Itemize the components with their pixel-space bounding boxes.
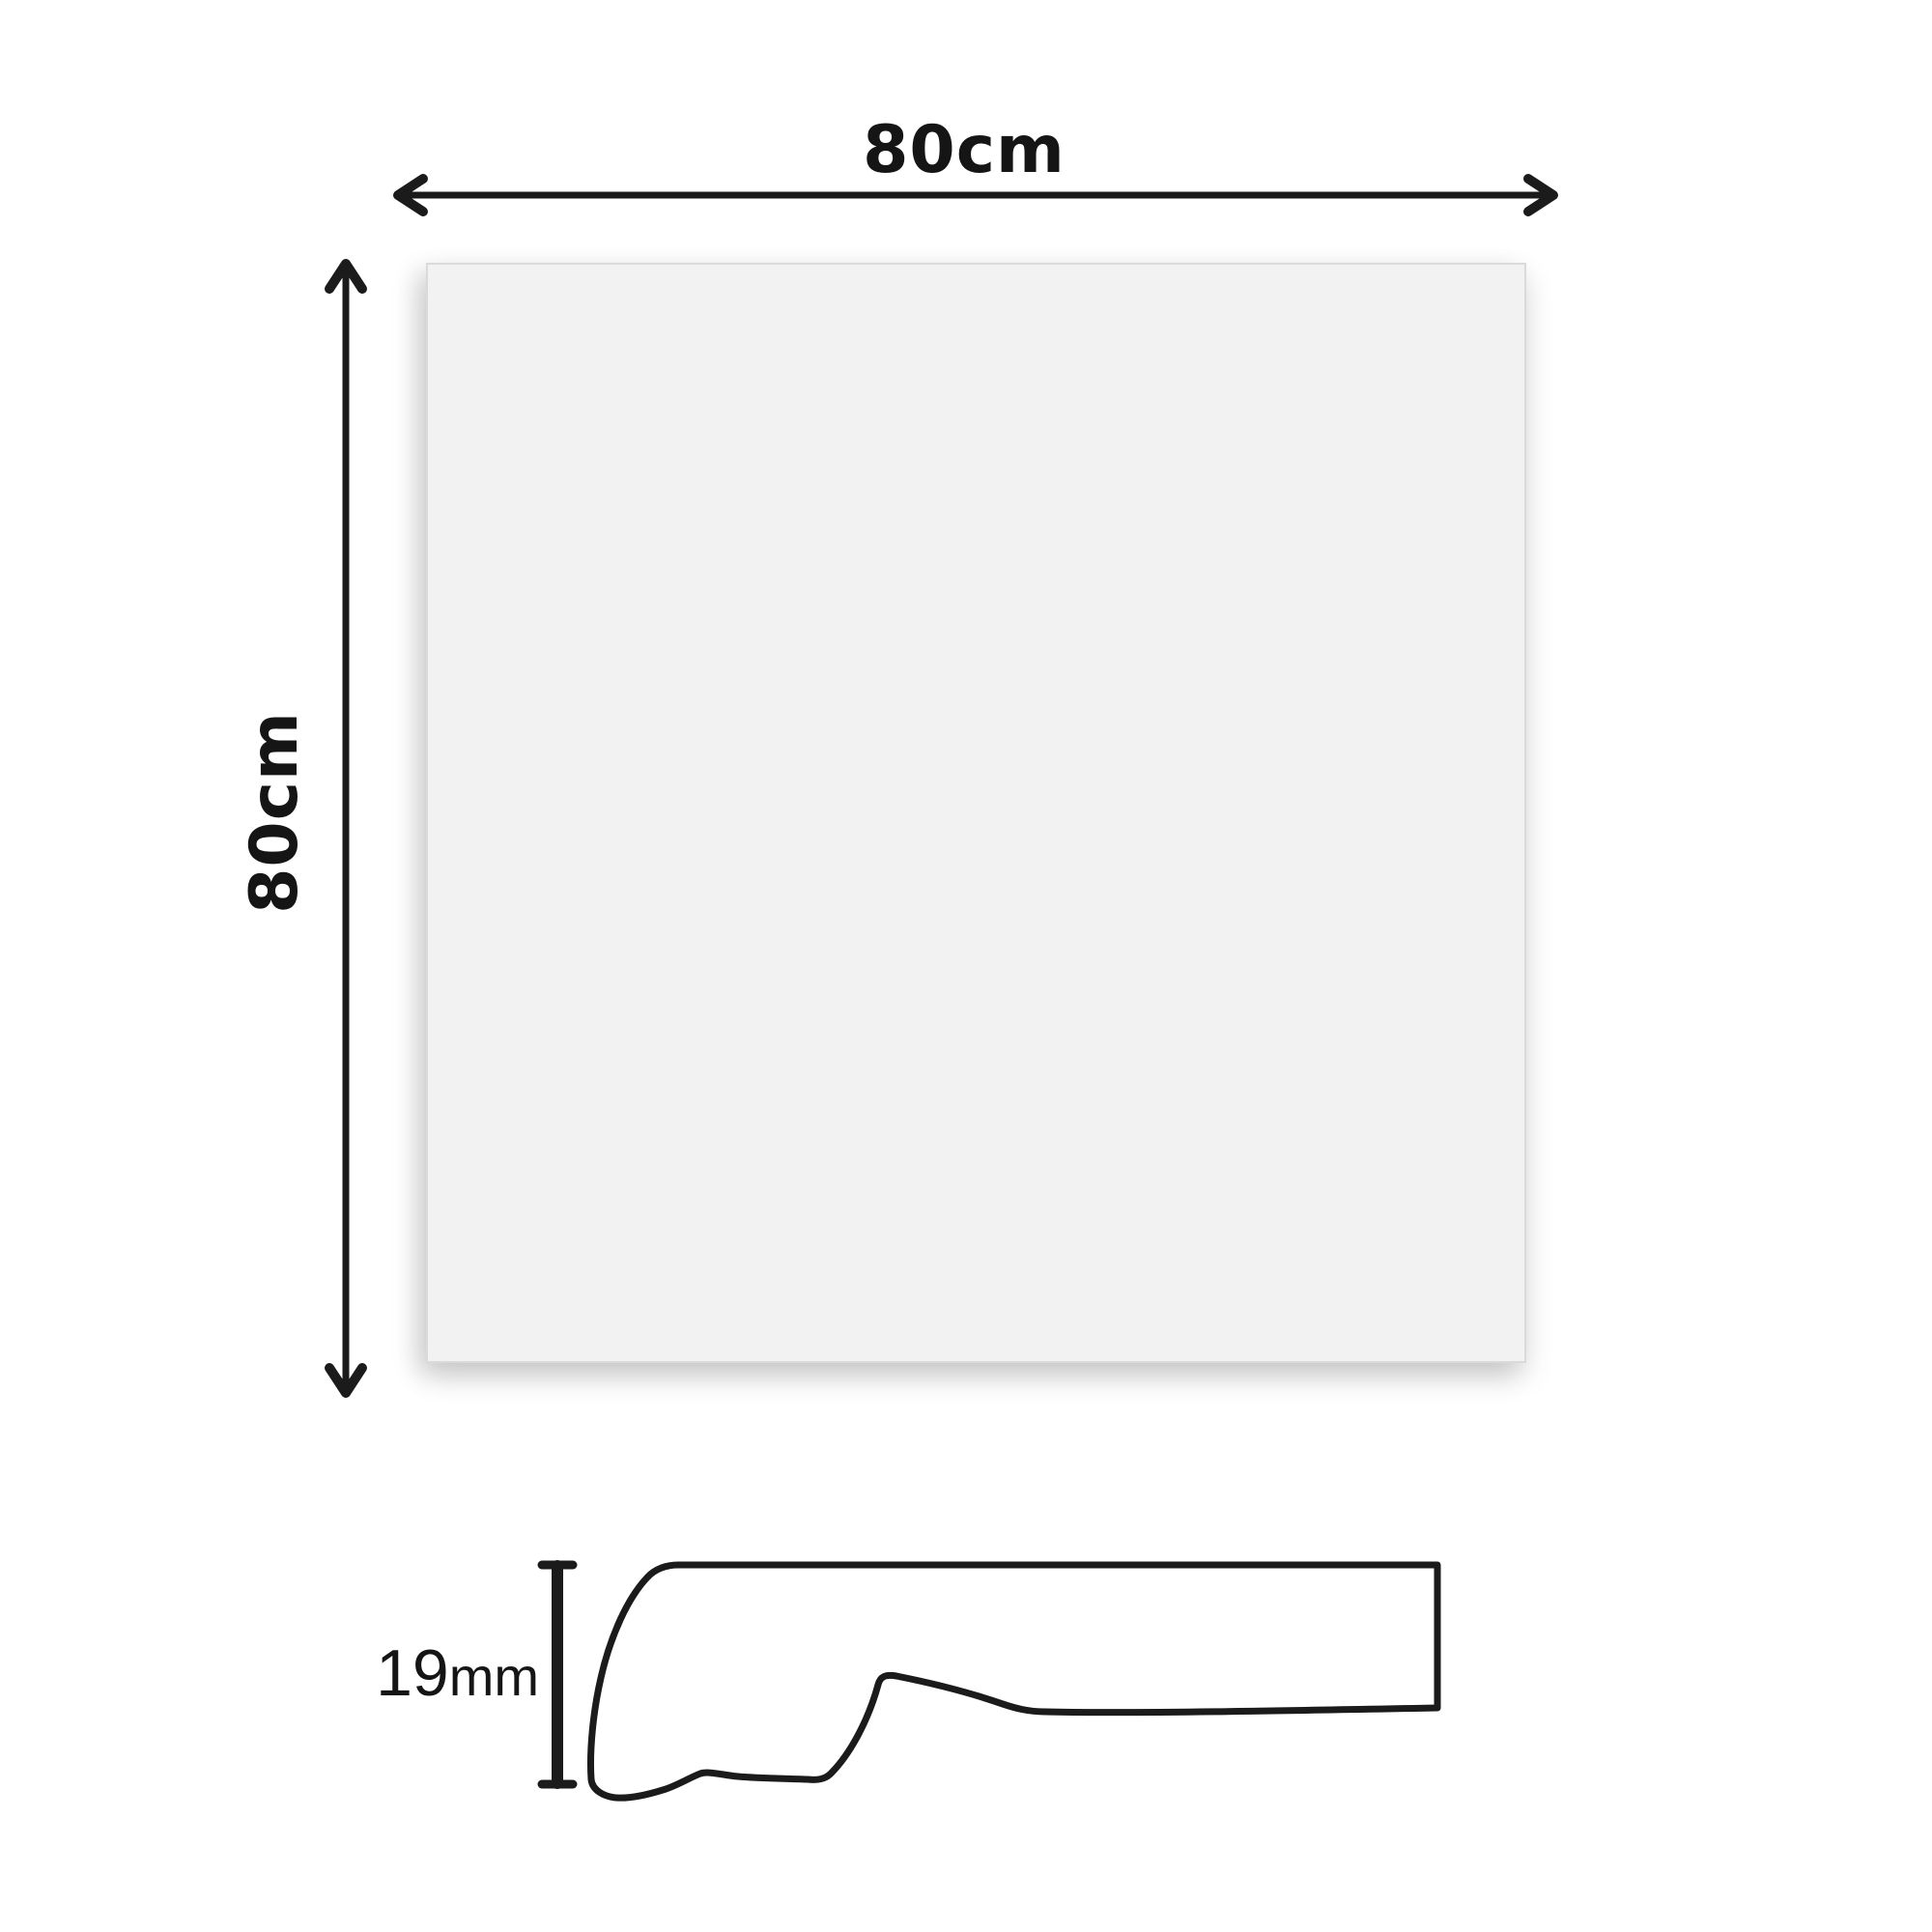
down-arrowhead-icon [329,1368,362,1393]
thickness-unit: mm [449,1646,539,1707]
thickness-dimension-line [542,1565,573,1784]
left-arrowhead-icon [398,179,423,212]
height-dimension-arrow [329,264,362,1393]
width-dimension-label: 80cm [863,118,1065,184]
height-dimension-label: 80cm [242,711,308,914]
dimension-diagram: 80cm 80cm 19mm [0,0,1932,1932]
up-arrowhead-icon [329,264,362,289]
right-arrowhead-icon [1528,179,1553,212]
panel-front-view [426,263,1526,1363]
thickness-dimension-label: 19mm [327,1640,539,1706]
thickness-value: 19 [376,1636,449,1710]
molding-profile-outline [590,1565,1437,1798]
